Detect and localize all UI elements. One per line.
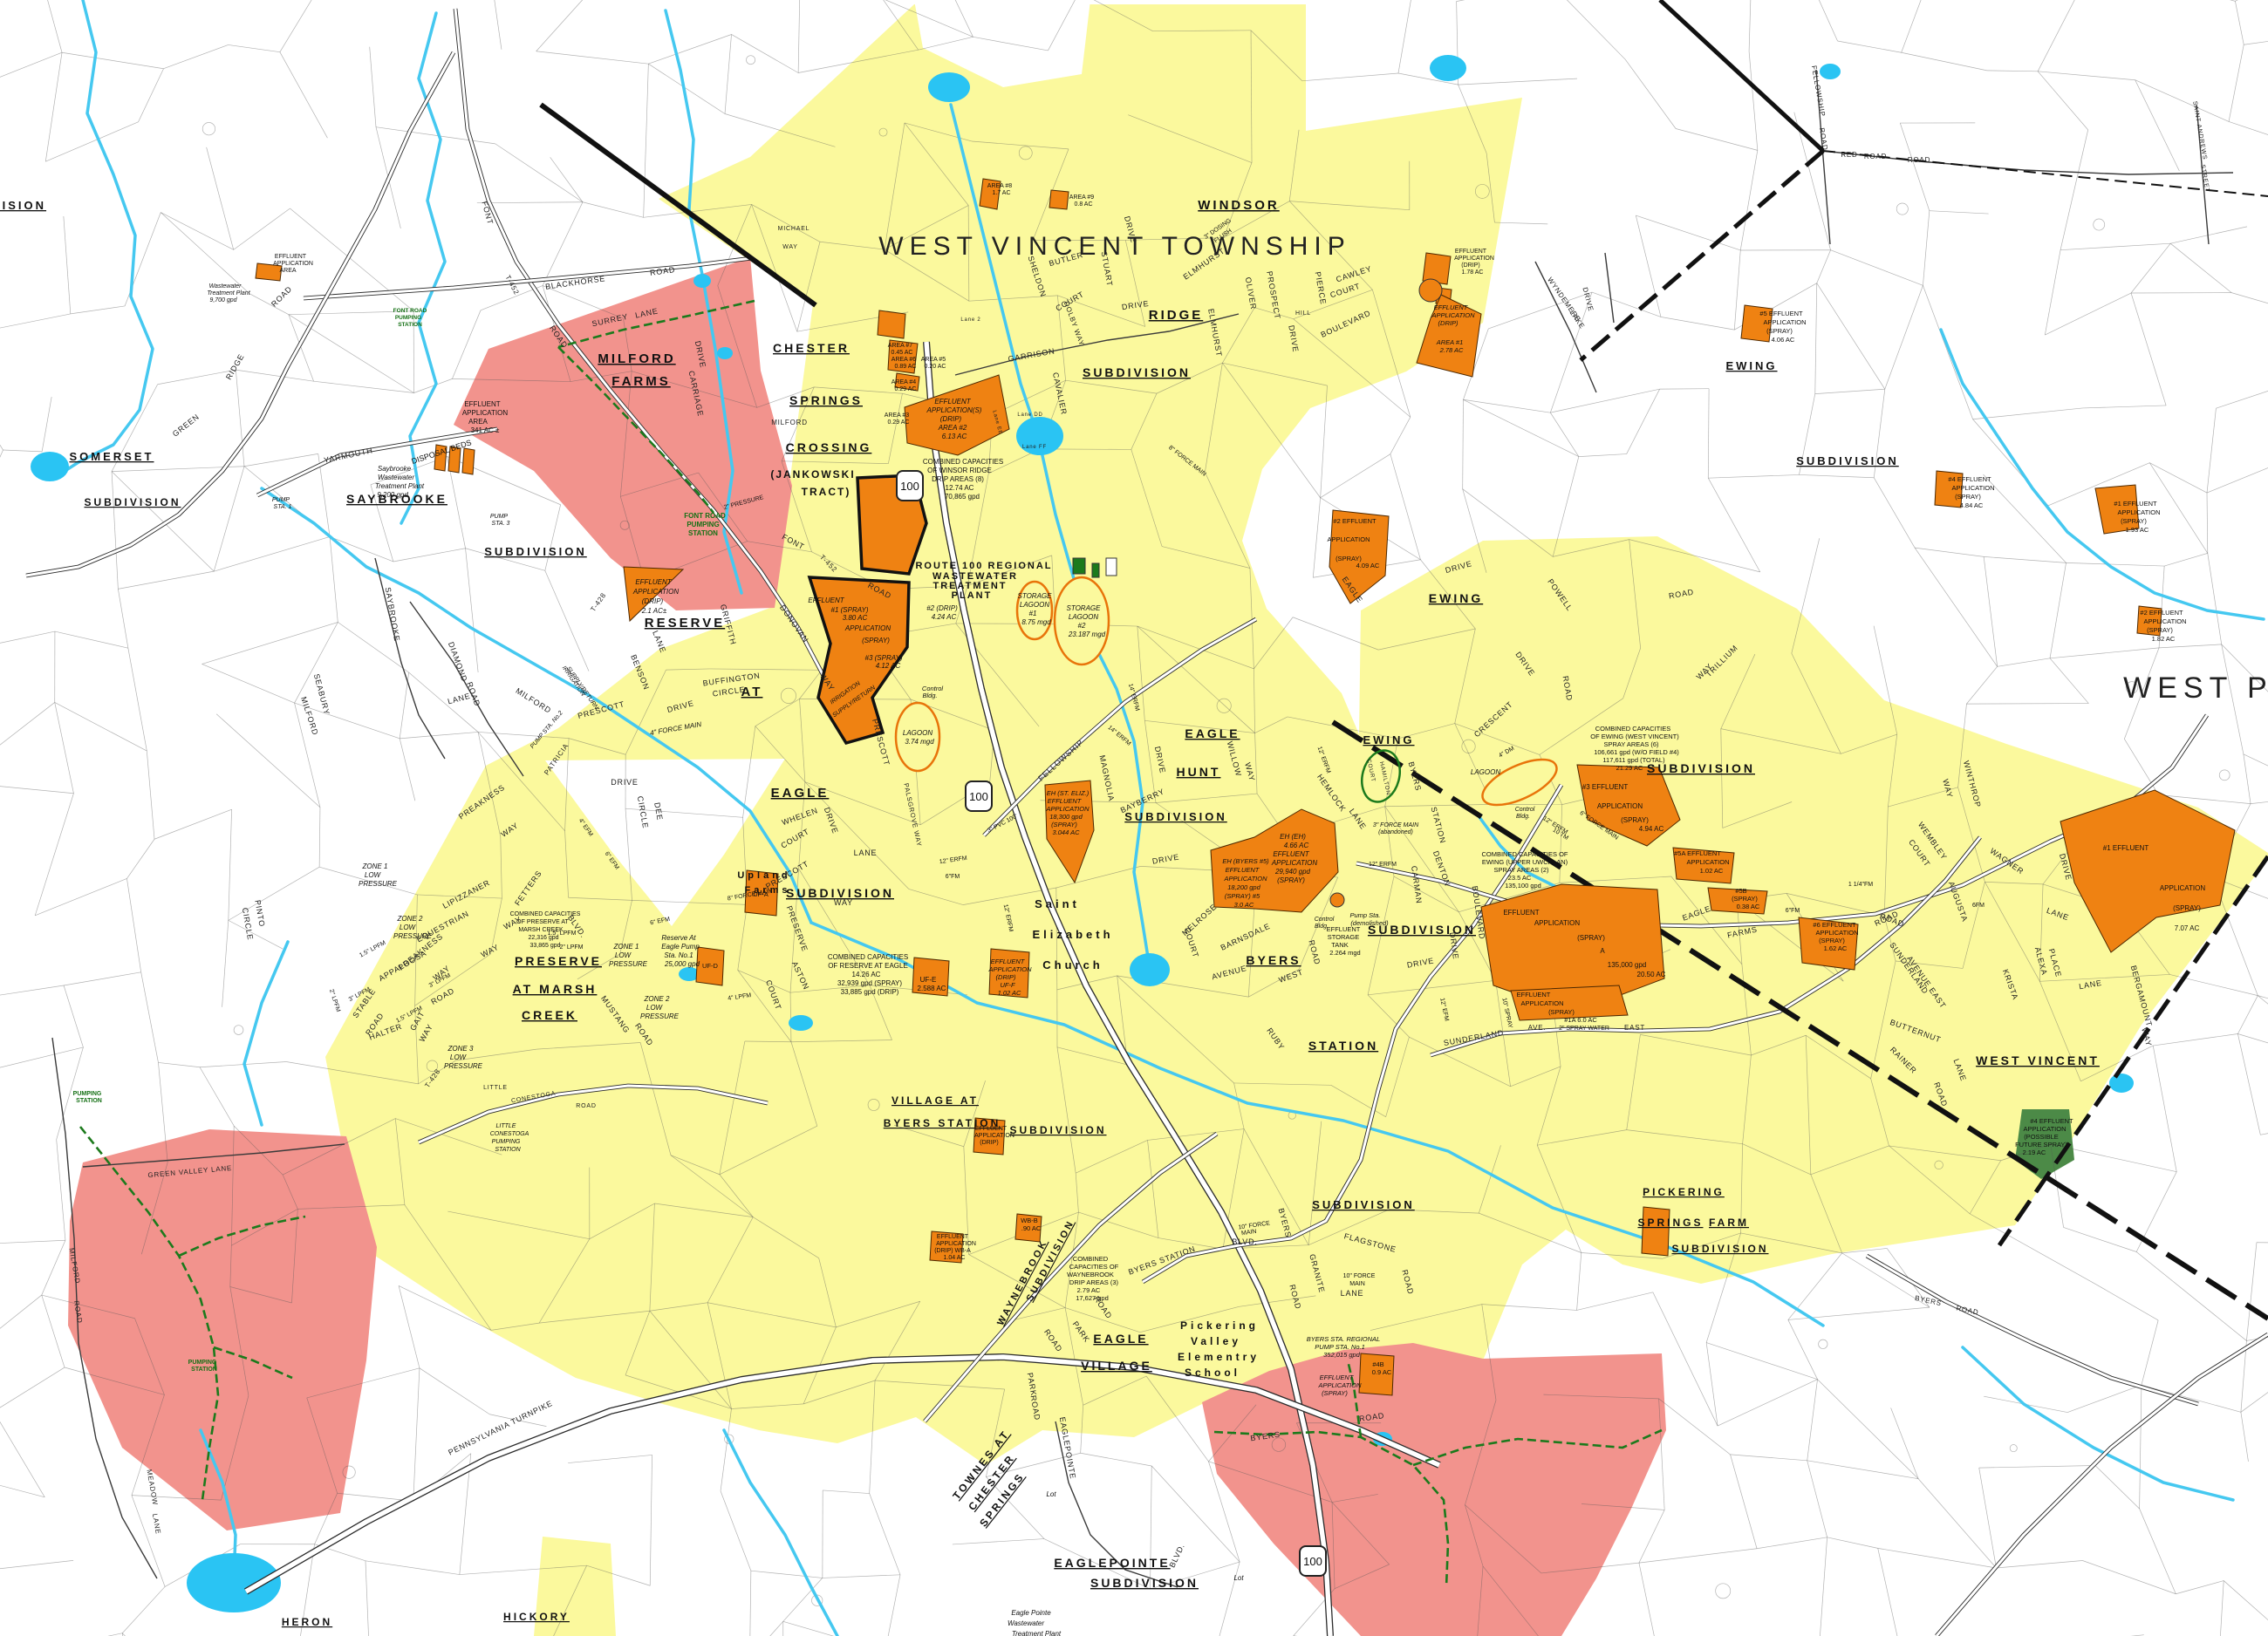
map-label: (abandoned) [1378,829,1413,835]
parcel-line [2235,0,2268,1]
map-label: APPLICATION(S) [926,406,982,414]
parcel-line [2165,0,2235,1]
pond [1430,55,1466,81]
map-label: (SPRAY) [1548,1008,1575,1016]
map-label: #3 (SPRAY) [865,654,903,662]
map-label: 6FM [1972,903,1984,909]
map-label: AREA #3 [885,412,910,419]
map-label: MAIN [1349,1281,1365,1287]
map-label: LOW [450,1053,468,1061]
map-label: #2 EFFLUENT [2140,609,2183,617]
map-label: 1.5" LPFM [548,930,577,937]
map-label: BLVD. [1232,1237,1257,1246]
map-label: Wastewater [1008,1619,1044,1627]
wwtp-building-1 [1073,558,1085,574]
wwtp-building-2 [1092,563,1099,577]
map-label: Bldg. [922,692,937,699]
map-label: ZONE 1 [613,943,639,951]
map-label: APPLICATION [462,409,509,417]
parcel-line [2095,1465,2140,1508]
parcel-line [295,623,338,704]
map-label: AREA #7 [888,343,913,349]
parcel-line [365,1561,369,1636]
map-label: Bldg. [1516,814,1530,820]
parcel-line [40,0,62,52]
map-label: ZONE 3 [447,1045,474,1053]
map-label: RESERVE [645,616,725,631]
map-label: Wastewater [209,283,242,290]
map-label: PRESSURE [359,880,398,888]
map-label: (SPRAY) [1277,876,1305,884]
map-label: 18,300 gpd [1049,813,1083,821]
map-label: 4.06 AC [1772,336,1795,344]
map-label: CAPACITIES OF [1069,1263,1119,1271]
map-label: APPLICATION [1534,919,1581,927]
parcel-line [409,672,478,732]
map-label: 4.84 AC [1960,501,1984,509]
map-label: APPLICATION [1597,802,1643,810]
map-label: T-428 [589,591,607,613]
map-label: FONT ROAD [393,308,427,314]
parcel-line [543,202,583,286]
map-label: 3.80 AC [843,614,868,622]
parcel-line [64,216,71,314]
map-label: 18,200 gpd [1227,883,1260,891]
storage-lagoon-2 [1055,577,1109,665]
map-label: VILLAGE [1081,1359,1152,1373]
map-label: ROUTE 100 REGIONAL [915,561,1052,571]
map-label: SUBDIVISION [1090,1576,1199,1590]
parcel-line [319,808,320,867]
map-label: School [1185,1367,1240,1379]
culdesac-circle [234,1026,243,1035]
map-label: (SPRAY) [2173,904,2201,912]
parcel-line [214,536,330,571]
parcel-line [289,315,414,393]
parcel-line [128,648,147,751]
map-label: WEST P [2123,671,2268,705]
parcel-line [200,1067,234,1126]
map-label: LITTLE [496,1123,516,1129]
map-label: EFFLUENT [1273,850,1309,858]
map-label: 341 AC ± [471,426,500,434]
township-planning-map: West Vincent Township Area Sewage Facili… [0,0,2268,1636]
parcel-line [112,472,118,590]
map-label: SPRINGS [789,393,863,407]
map-label: #6 EFFLUENT [1813,921,1856,929]
map-label: Bldg. [1315,924,1329,930]
map-label: OF PRESERVE AT [516,919,569,925]
parcel-line [750,1571,751,1636]
map-label: 33,865 gpd [529,943,560,949]
map-label: WAYNEBROOK [1067,1271,1114,1278]
parcel-line [64,985,83,1047]
parcel-line [2237,1034,2260,1135]
map-label: STORAGE [1067,604,1102,612]
map-label: SUBDIVISION [84,496,181,508]
map-label: APPLICATION [273,261,313,267]
parcel-line [1819,1537,1827,1636]
map-label: APPLICATION [1763,318,1806,326]
map-label: PUMPING [687,521,719,528]
map-label: EFFLUENT [934,398,971,406]
map-label: 2" LPFM [560,944,584,951]
parcel-line [399,1285,420,1367]
map-label: (DRIP) [980,1140,998,1146]
map-label: (DRIP) [1438,319,1458,327]
map-label: 0.89 AC [895,364,917,370]
parcel-line [35,794,73,916]
parcel-line [644,121,647,218]
map-label: AREA #5 [921,357,946,363]
map-label: APPLICATION [1271,859,1318,867]
map-label: #4 EFFLUENT [2030,1117,2073,1125]
map-label: MILFORD [598,351,675,366]
map-label: OF EWING (WEST VINCENT) [1590,733,1679,740]
parcel-line [42,1240,65,1295]
map-label: 70,865 gpd [945,493,980,501]
map-label: EAGLE [771,786,830,801]
parcel-line [1878,1548,1997,1568]
map-label: Treatment Plant [375,482,425,490]
map-label: UF-D [702,962,718,970]
parcel-line [0,631,55,654]
map-label: #3 EFFLUENT [1582,783,1629,791]
map-label: CONESTOGA [490,1131,529,1137]
map-label: 2" SPRAY WATER [1559,1026,1609,1032]
map-label: (demolished) [1350,919,1389,927]
parcel-line [2220,1581,2224,1636]
map-label: PUMP [490,514,509,520]
parcel-line [2237,996,2258,1034]
map-label: RIDGE [1149,308,1204,323]
map-label: ROAD [649,265,675,277]
stream [724,1430,837,1636]
parcel-line [244,453,318,466]
map-label: 0.45 AC [891,350,913,356]
parcel-line [1639,1549,1757,1563]
map-label: 1.02 AC [998,989,1021,997]
parcel-line [0,702,55,746]
map-label: STORAGE [1018,592,1053,600]
map-label: STATION [398,322,422,328]
map-label: EFFLUENT [1455,249,1487,255]
map-label: RED [1841,151,1857,159]
pond [1820,64,1841,79]
map-label: (SPRAY) [862,637,890,644]
map-label: (SPRAY) [1577,934,1605,942]
map-label: FONT [480,201,495,226]
parcel-line [202,623,338,665]
parcel-line [751,1571,823,1578]
map-label: 3.0 AC [1234,901,1254,909]
map-label: 23.5 AC [1508,874,1532,882]
map-label: 17,627 gpd [1076,1294,1109,1302]
lagoon-374 [896,703,939,771]
map-label: EFFLUENT [1503,909,1539,917]
map-label: PUMP [272,497,290,503]
map-canvas: 100100100 WEST VINCENT TOWNSHIPWEST PMIL… [0,0,2268,1636]
map-label: #1 (SPRAY) [831,606,869,614]
map-label: WB-B [1021,1217,1038,1224]
parcel-line [2153,1034,2237,1046]
map-label: APPLICATION [844,624,891,632]
parcel-line [126,878,140,971]
route-100-shield-label: 100 [900,480,919,493]
map-label: (SPRAY) #5 [1225,892,1260,900]
map-label: 8.75 mgd [1021,618,1051,626]
map-label: 6.13 AC [942,433,967,440]
parcel-line [2241,1412,2249,1462]
parcel-line [495,144,583,202]
map-label: (SPRAY) [2147,626,2173,634]
parcel-line [420,1368,489,1414]
map-label: 1.82 AC [2152,635,2176,643]
map-label: STATION [191,1367,217,1373]
map-label: MILFORD [771,419,808,426]
map-label: 1.78 AC [1462,269,1484,276]
map-label: 32,939 gpd (SPRAY) [837,979,902,987]
map-label: AREA #1 [1436,338,1464,346]
map-label: EH (BYERS #5) [1222,857,1269,865]
effluent-tank-circle [1419,279,1442,302]
parcel-line [55,702,74,793]
map-label: STA. 1 [274,504,292,510]
map-label: 2.264 mgd [1329,949,1360,957]
culdesac-circle [202,122,215,134]
parcel-line [1706,1343,1817,1380]
map-label: Lane FF [1022,445,1047,450]
map-label: Valley [1191,1335,1241,1347]
parcel-line [1718,1380,1817,1426]
parcel-line [452,310,481,379]
parcel-line [1918,1479,1996,1568]
map-label: MILFORD [514,686,552,715]
map-label: CHESTER [773,341,850,355]
map-label: PRESSURE [609,960,648,968]
parcel-line [161,213,233,250]
parcel-line [42,1295,65,1367]
map-label: PUMP STA. No.1 [1315,1343,1365,1351]
parcel-line [55,702,147,751]
map-label: MILFORD [299,696,320,737]
map-label: 1 1/4"FM [1848,882,1873,888]
parcel-line [2257,1243,2268,1244]
map-label: TANK [1331,941,1348,949]
parcel-line [164,44,229,68]
map-label: CROSSING [786,440,872,454]
map-label: EFFLUENT [464,400,500,408]
pond [693,274,711,288]
map-label: Church [1042,958,1103,971]
map-label: EFFLUENT [937,1234,969,1240]
map-label: LAGOON [1020,601,1049,609]
map-label: 1.7 AC [992,190,1010,196]
parcel-line [161,213,249,294]
parcel-line [0,1367,65,1411]
map-label: LOW [615,951,632,959]
map-label: Pump Sta. [1349,911,1380,919]
parcel-line [545,505,561,571]
parcel-line [118,571,214,589]
parcel-line [725,34,732,113]
effluent-pickering-springs [1642,1207,1670,1256]
map-label: SAYBROOKE [384,587,402,643]
map-label: PUMPING [395,315,421,321]
parcel-line [118,589,128,648]
parcel-line [798,0,801,72]
map-label: PICKERING [1643,1186,1725,1198]
parcel-line [1979,1465,2095,1468]
map-label: ROAD [1956,1304,1980,1316]
parcel-line [0,1295,42,1333]
parcel-line [216,714,320,808]
parcel-line [0,52,62,86]
parcel-line [1979,1468,1997,1568]
windsor-area7 [878,310,905,338]
map-label: WAY [782,244,798,250]
map-label: #1 EFFLUENT [2114,500,2157,508]
map-label: 33,885 gpd (DRIP) [841,988,899,996]
map-label: 2.1 AC± [641,607,667,615]
map-label: 1.62 AC [1824,944,1848,952]
map-label: (SPRAY) [1051,821,1077,828]
parcel-line [42,397,51,452]
parcel-line [330,536,338,622]
map-label: 14.26 AC [852,971,881,978]
parcel-line [330,536,393,562]
map-label: STATION [688,529,718,537]
map-label: SUBDIVISION [1124,810,1227,823]
parcel-line [2142,1385,2241,1412]
map-label: 135,000 gpd [1608,961,1647,969]
map-label: SUBDIVISION [1796,454,1899,467]
map-label: LAGOON [1471,768,1500,776]
map-label: WAY [834,898,853,907]
map-label: 117,611 gpd (TOTAL) [1602,756,1665,764]
parcel-line [1878,1548,1902,1636]
stream [54,0,153,478]
map-label: COMBINED CAPACITIES [923,458,1003,466]
map-label: (POSSIBLE [2024,1133,2059,1141]
map-label: Lot [1233,1574,1244,1582]
map-label: EFFLUENT [1517,991,1551,999]
parcel-line [545,570,589,671]
parcel-line [0,1471,44,1497]
map-label: 10" FORCE [1343,1273,1376,1279]
map-label: GREEN [171,412,202,439]
map-label: SPRAY AREAS (2) [1493,866,1549,874]
map-label: 4.66 AC [1284,842,1309,849]
map-label: 4.12 AC [876,662,901,670]
map-label: PLANT [952,590,993,601]
parcel-line [0,314,71,338]
parcel-line [1457,0,1550,2]
map-label: BYERS [1246,953,1301,967]
parcel-line [400,732,478,738]
parcel-line [202,664,295,703]
map-label: 9,200 gpd [377,491,408,499]
map-label: 6"FM [946,874,960,880]
map-label: (DRIP) WB-A [934,1248,971,1254]
parcel-line [229,809,232,920]
map-label: COMBINED CAPACITIES OF [1481,850,1568,858]
map-label: AREA #6 [891,357,917,363]
parcel-line [3,450,43,452]
map-label: LAGOON [1069,613,1098,621]
map-label: (DRIP) [940,415,962,423]
map-label: LOW [400,924,417,931]
route-100-shield-label: 100 [1303,1555,1322,1568]
map-label: PRESSURE [393,932,433,940]
map-label: 3" FORCE MAIN [1373,822,1419,828]
parcel-line [0,985,64,1002]
map-label: SUBDIVISION [1009,1124,1106,1136]
culdesac-circle [747,56,755,65]
parcel-line [141,972,159,1063]
parcel-line [1807,1380,1818,1461]
road-casing-byers-road-se [1867,1256,2198,1404]
map-label: LOW [365,871,382,879]
map-label: 7.07 AC [2175,924,2200,932]
map-label: SUBDIVISION [1671,1243,1768,1255]
map-label: 6"FM [1786,908,1800,914]
map-label: Elizabeth [1032,928,1113,941]
map-label: EFFLUENT [1434,303,1469,311]
map-label: (SPRAY) [2121,517,2147,525]
map-label: A [1600,947,1605,955]
pond [2109,1074,2134,1093]
parcel-line [62,52,164,68]
map-label: 3.74 mgd [905,738,934,746]
parcel-line [370,47,376,127]
parcel-line [122,1586,165,1633]
pond [717,347,733,359]
map-label: DIAMOND [447,641,469,684]
parcel-line [2153,1046,2176,1172]
windsor-area9 [1049,190,1069,209]
parcel-line [650,1455,652,1585]
map-label: 1.93 AC [2126,526,2149,534]
map-label: APPLICATION [1951,484,1994,492]
map-label: 20.50 AC [1637,971,1666,978]
parcel-line [648,34,731,64]
parcel-line [138,69,163,122]
map-label: (DRIP) [1461,262,1479,269]
map-label: EWING (UPPER UWCHLAN) [1482,858,1568,866]
map-label: PUMPING [492,1139,521,1145]
map-label: APPLICATION [1045,805,1090,813]
map-label: LANE [854,849,878,857]
map-label: Lane DD [1017,412,1042,418]
map-label: 1.04 AC [944,1255,966,1261]
map-label: YARMOUTH [323,446,373,465]
map-label: WEST VINCENT [1976,1053,2100,1067]
map-label: Elementry [1178,1351,1260,1363]
map-label: PRESSURE [444,1062,483,1070]
map-label: DRIP AREAS (8) [932,475,984,483]
map-label: FUTURE SPRAY) [2015,1141,2067,1149]
map-label: 1.02 AC [1700,867,1724,875]
parcel-line [721,1491,751,1571]
culdesac-circle [1819,1339,1827,1348]
region-pink-bottom-left [68,1129,377,1530]
map-label: AVE. [1528,1024,1547,1032]
parcel-line [1827,1537,1878,1549]
parcel-line [214,467,244,571]
map-label: CREEK [522,1008,577,1022]
map-label: EFFLUENT [1048,797,1083,805]
